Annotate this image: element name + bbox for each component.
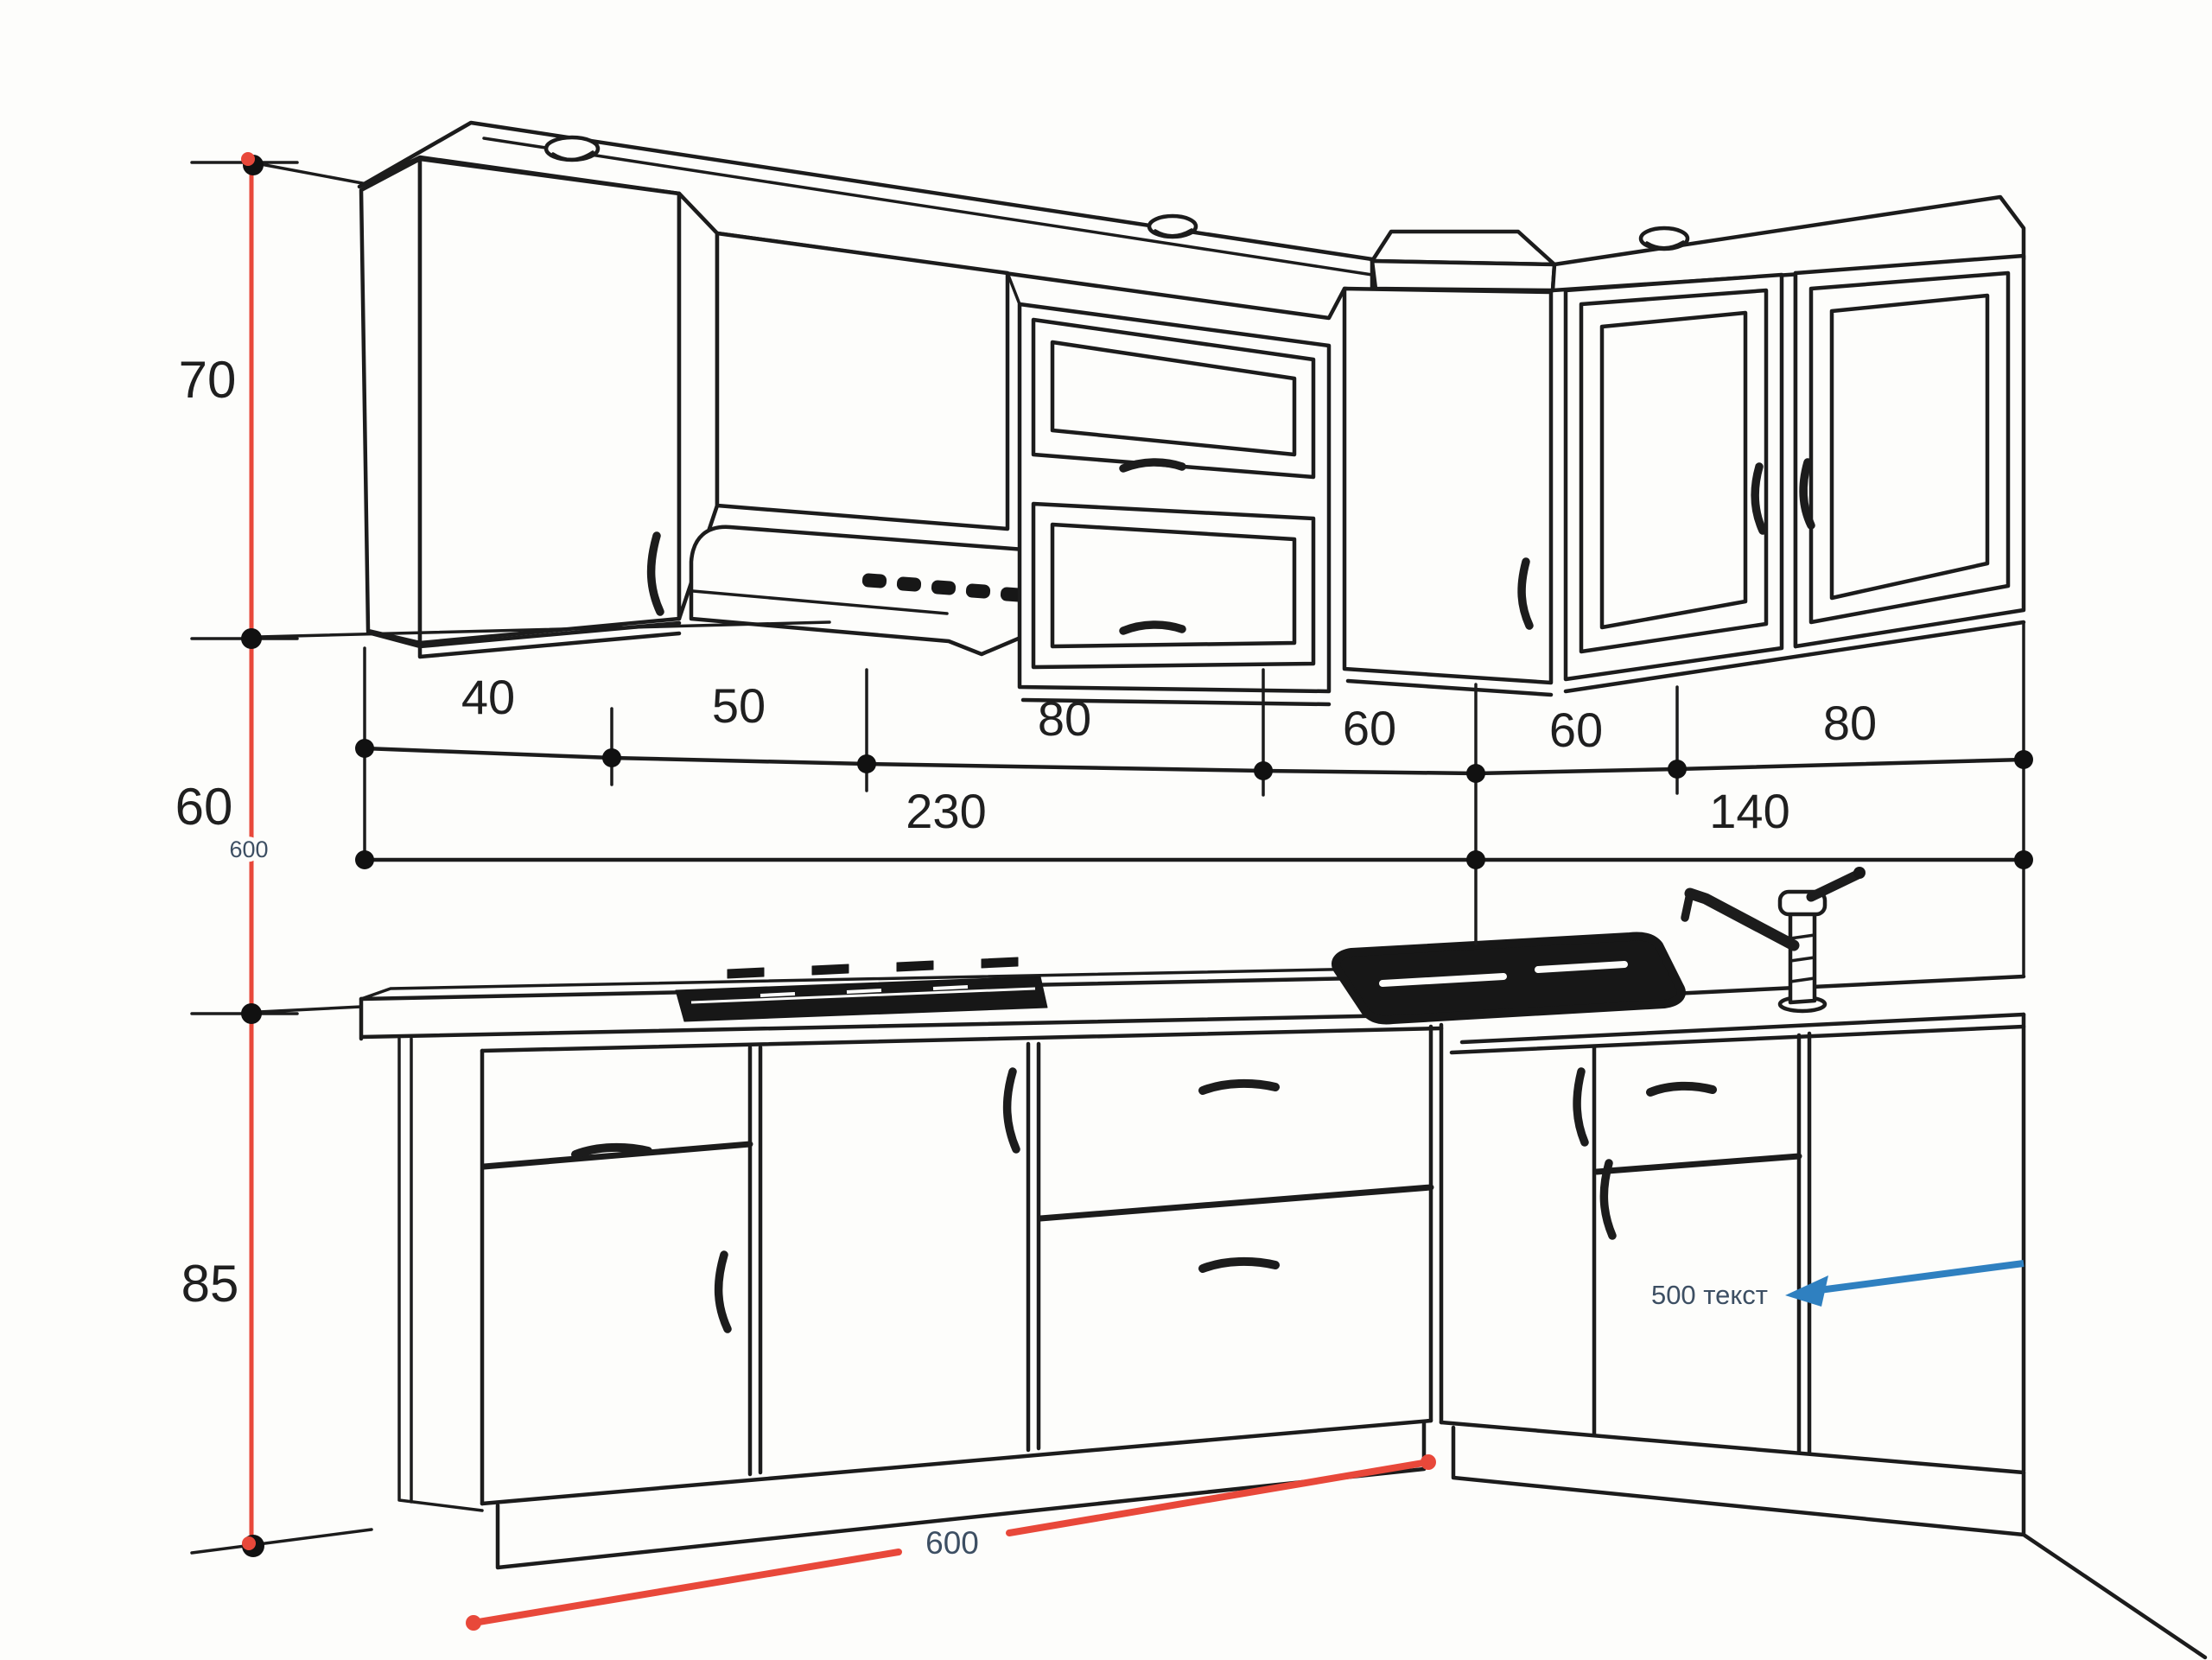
base-cabinets-right-run bbox=[1441, 1014, 2205, 1657]
base-divider-b-c bbox=[1028, 1044, 1039, 1450]
ref-countertop bbox=[192, 1007, 361, 1014]
kitchen-drawing-svg: 40 50 80 60 60 80 230 140 70 60 85 600 bbox=[0, 0, 2212, 1660]
blue-arrow-line bbox=[1813, 1263, 2024, 1291]
door-handle-icon bbox=[1007, 1072, 1016, 1149]
drawer-handle-icon bbox=[1203, 1084, 1275, 1091]
spot-light-icon bbox=[1149, 216, 1196, 237]
red-diagonal-endpoint bbox=[1421, 1454, 1436, 1470]
dim-60-left: 60 bbox=[175, 778, 233, 836]
dim-row1-dots bbox=[355, 739, 2033, 783]
vertical-red-dimension: 70 60 85 600 bbox=[175, 152, 269, 1557]
gas-hob bbox=[676, 957, 1047, 1021]
corner-cabinet-door bbox=[1344, 289, 1551, 683]
spot-light-icon bbox=[546, 137, 598, 160]
corner-cabinet-bottom-band bbox=[1348, 681, 1551, 695]
red-diagonal-endpoint bbox=[466, 1615, 481, 1631]
hood-cabinet-50 bbox=[717, 233, 1007, 529]
right-wall-cabinet-1 bbox=[1566, 275, 1782, 679]
drawer-divider bbox=[1040, 1187, 1431, 1218]
faucet-lever-knob bbox=[1853, 867, 1866, 879]
wall-cabinet-tall-40 bbox=[361, 159, 717, 657]
kitchen-technical-drawing-page: 40 50 80 60 60 80 230 140 70 60 85 600 bbox=[0, 0, 2212, 1660]
drawer-divider bbox=[1597, 1156, 1799, 1172]
dim-50: 50 bbox=[712, 678, 766, 733]
door-handle-icon bbox=[1577, 1072, 1585, 1142]
faucet-spout-tip bbox=[1685, 894, 1690, 918]
dim-60b: 60 bbox=[1549, 703, 1603, 757]
dim-230: 230 bbox=[906, 784, 986, 838]
kitchen-line-art bbox=[359, 123, 2205, 1657]
dim-140: 140 bbox=[1709, 784, 1789, 838]
faucet-lever bbox=[1811, 875, 1858, 897]
note-500-text: 500 текст bbox=[1651, 1280, 1768, 1310]
door-handle-icon bbox=[719, 1255, 728, 1329]
dim-85: 85 bbox=[181, 1255, 239, 1313]
hob-body bbox=[676, 976, 1047, 1021]
tall-cabinet-door bbox=[420, 159, 679, 643]
corner-cap-top bbox=[1372, 232, 1554, 264]
hob-burners bbox=[728, 957, 1018, 978]
red-endpoint-top bbox=[241, 152, 255, 166]
base-corner-seam bbox=[1431, 1025, 1441, 1422]
plinth-right bbox=[1453, 1428, 2205, 1657]
ref-floor bbox=[192, 1530, 372, 1553]
right-fronts-bottom bbox=[1441, 1422, 2024, 1472]
bottom-red-dimension: 600 bbox=[466, 1454, 1436, 1631]
dim-600-small: 600 bbox=[229, 836, 268, 862]
dim-60a: 60 bbox=[1343, 701, 1396, 755]
door-handle-icon bbox=[1604, 1163, 1612, 1236]
blue-arrow-note: 500 текст bbox=[1651, 1263, 2024, 1310]
sink-basin bbox=[1336, 936, 1681, 1020]
base-divider-right bbox=[1799, 1034, 1809, 1453]
base-left-gable bbox=[399, 1039, 482, 1511]
dim-600-red: 600 bbox=[925, 1525, 979, 1561]
drawer-handle-icon bbox=[1650, 1086, 1713, 1092]
red-endpoint-bottom bbox=[242, 1536, 256, 1550]
dim-40: 40 bbox=[461, 670, 515, 724]
spot-light-icon bbox=[1641, 228, 1688, 249]
tall-cabinet-side bbox=[361, 159, 420, 643]
dim-80b: 80 bbox=[1823, 696, 1877, 750]
sink bbox=[1336, 936, 1681, 1020]
ref-top bbox=[192, 162, 372, 185]
base-fronts-bottom bbox=[482, 1421, 1431, 1504]
corner-wall-cabinet-60 bbox=[1344, 289, 1551, 695]
dimension-row-2: 230 140 bbox=[355, 784, 2033, 869]
cornice-corner-cap bbox=[1372, 232, 1554, 290]
base-divider-a-b bbox=[750, 1047, 760, 1474]
dim-70: 70 bbox=[179, 351, 237, 409]
dim-80a: 80 bbox=[1038, 691, 1091, 746]
faucet-column bbox=[1790, 907, 1815, 1002]
drawer-handle-icon bbox=[1203, 1262, 1275, 1269]
blue-arrowhead-icon bbox=[1785, 1275, 1828, 1307]
hood-cabinet-face bbox=[717, 233, 1007, 529]
corner-cap-band bbox=[1372, 261, 1554, 290]
wall-cabinet-glass-80 bbox=[1007, 273, 1329, 704]
wall-cabinets-right-run bbox=[1566, 256, 2024, 691]
